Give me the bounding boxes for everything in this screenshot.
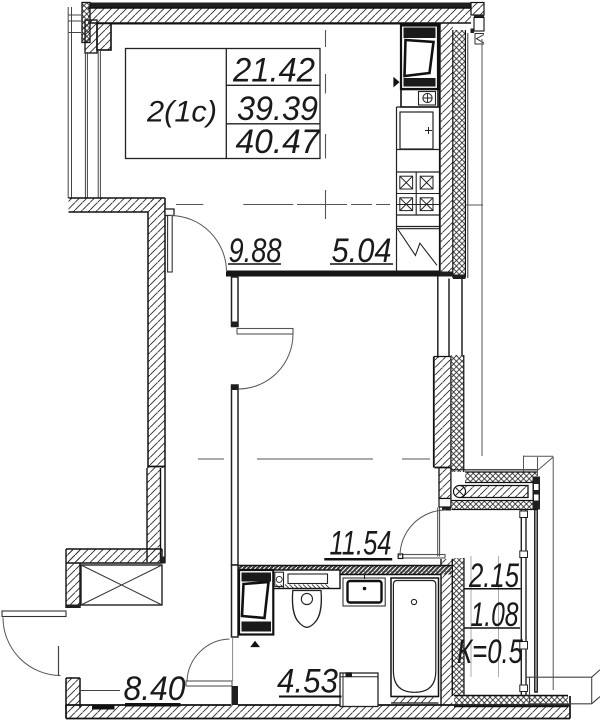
svg-text:8.40: 8.40 (124, 670, 186, 708)
svg-text:40.47: 40.47 (236, 123, 321, 161)
svg-text:2(1с): 2(1с) (146, 96, 217, 129)
svg-text:К=0.5: К=0.5 (457, 633, 523, 671)
svg-text:11.54: 11.54 (330, 525, 392, 563)
svg-text:4.53: 4.53 (277, 663, 338, 701)
svg-text:21.42: 21.42 (232, 52, 315, 90)
